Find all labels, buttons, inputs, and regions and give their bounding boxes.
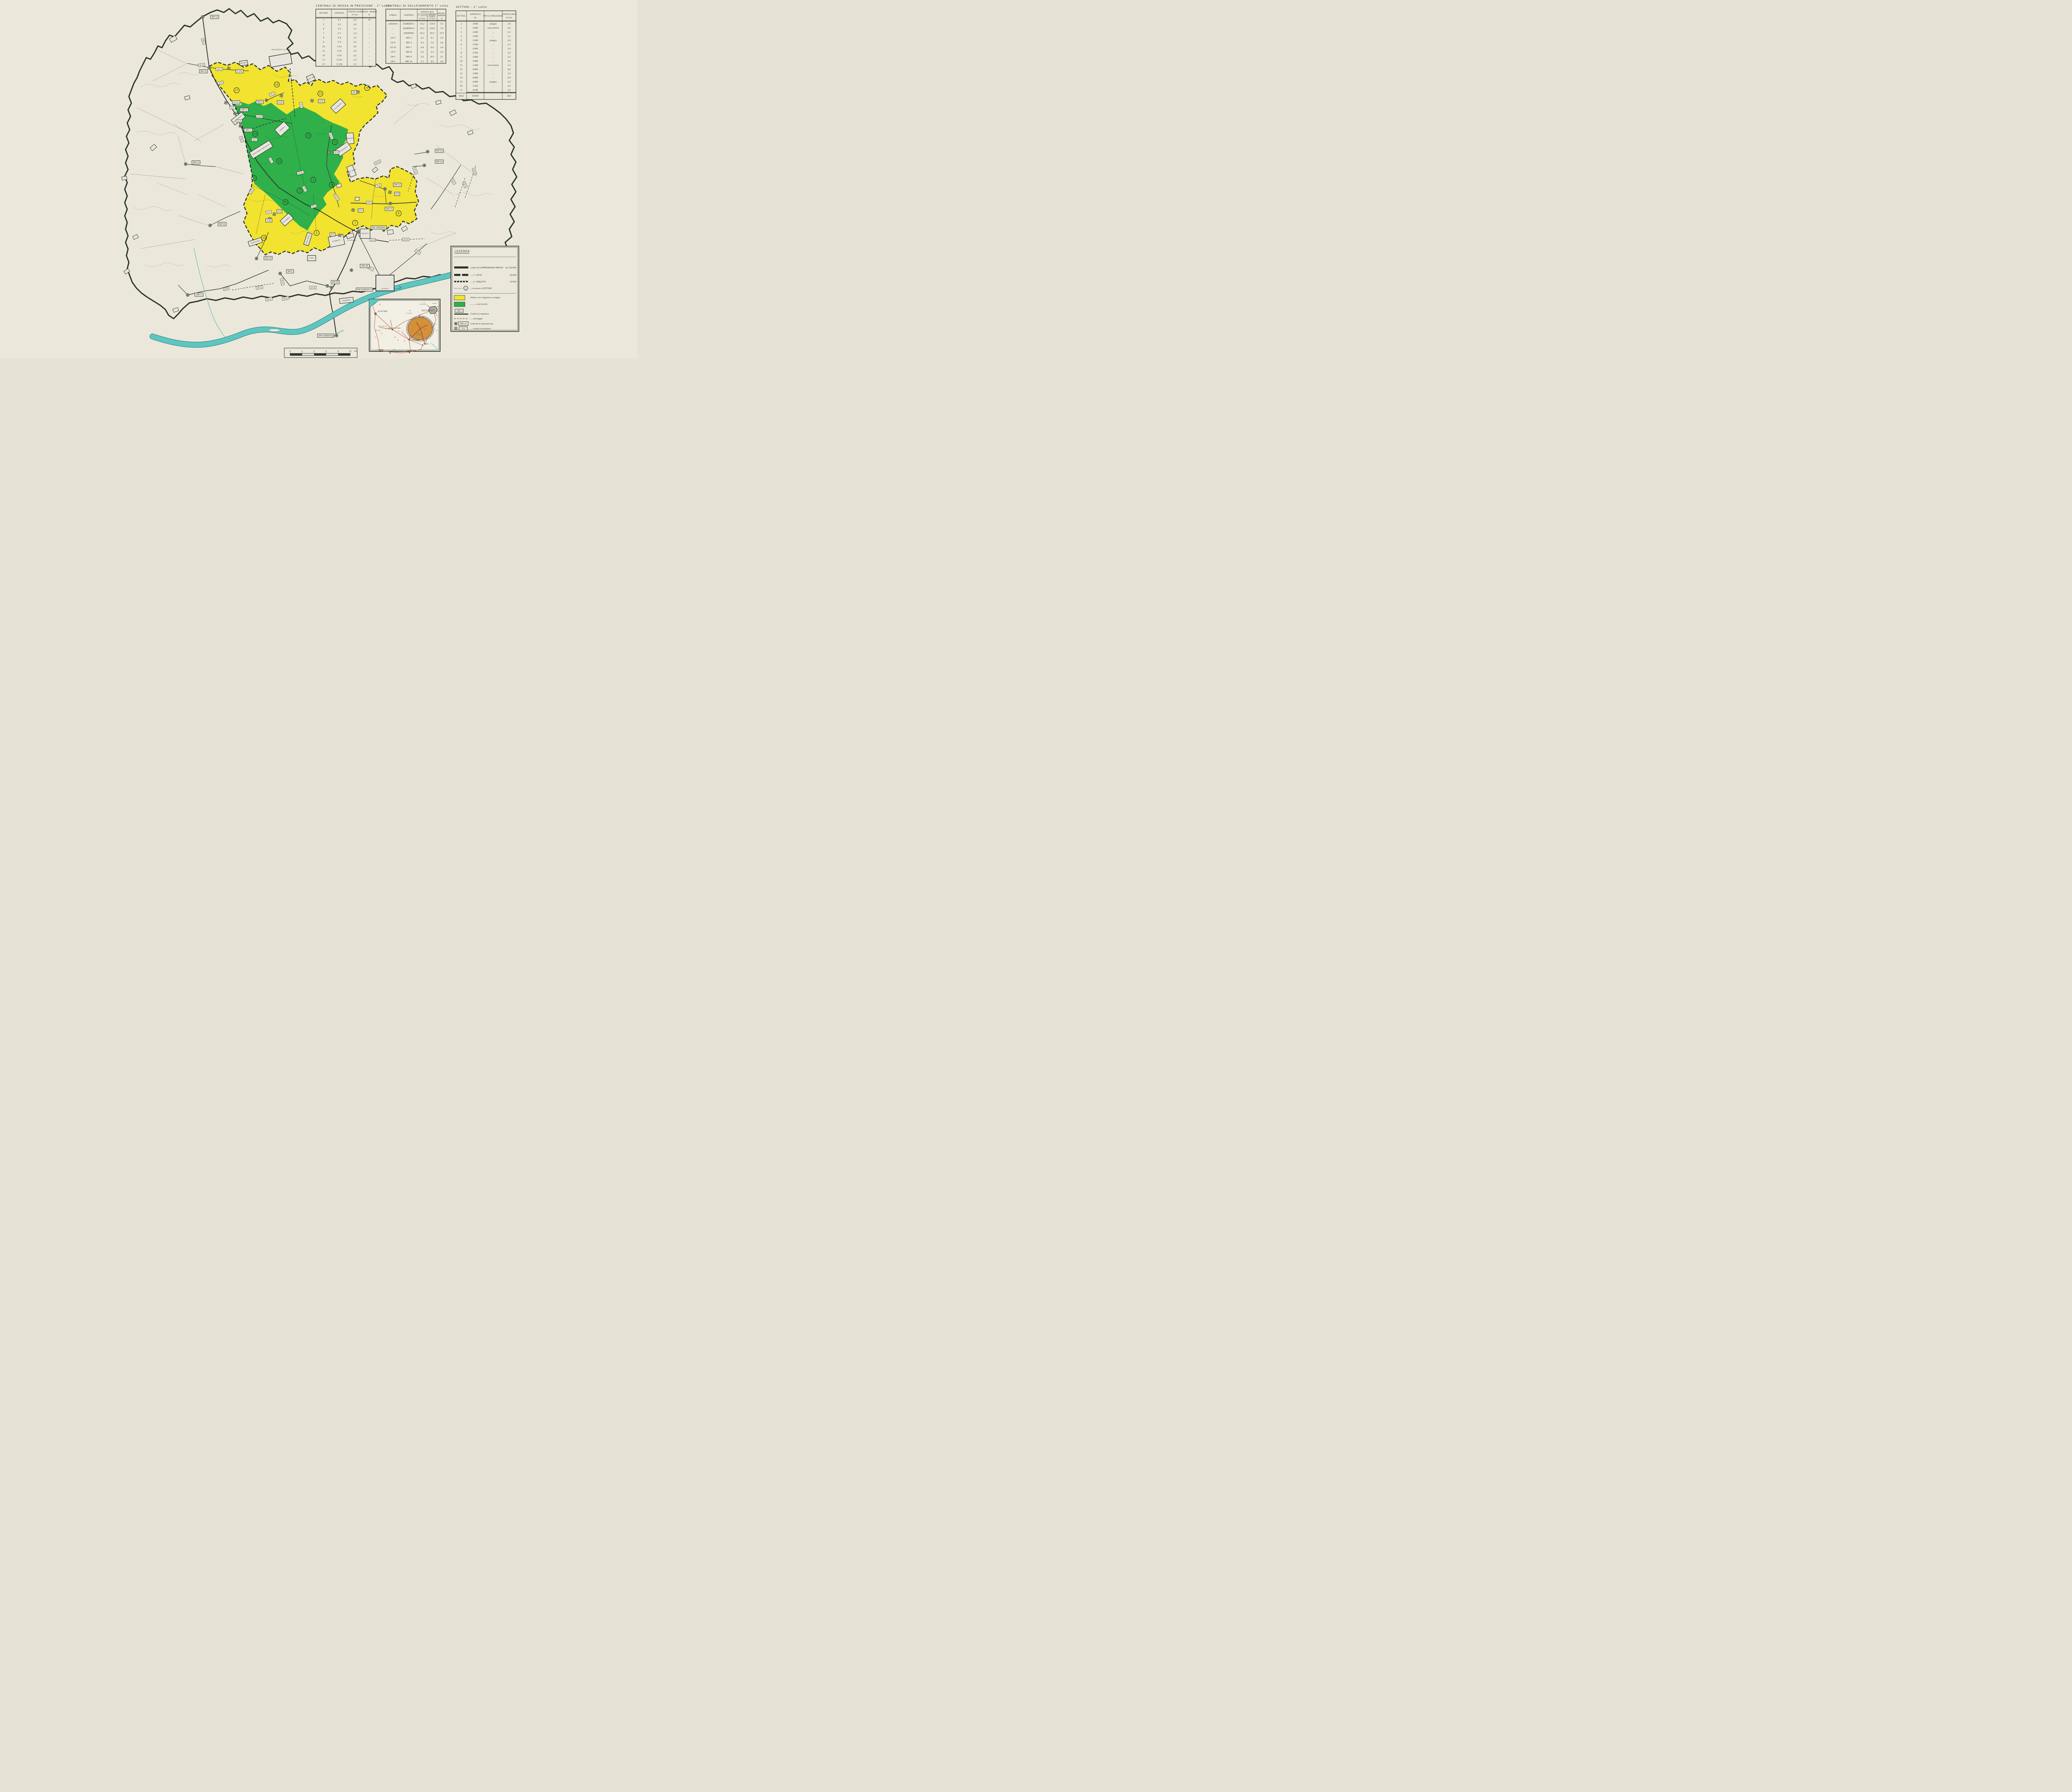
- cell-preval: „: [369, 28, 370, 30]
- cell-settore: 6: [323, 28, 324, 30]
- cell-intero: 8,9: [431, 60, 433, 63]
- cell-superficie: 2'200: [473, 31, 478, 34]
- settlement: [387, 230, 394, 235]
- inset-town-dot: [375, 313, 376, 314]
- cell-lotto: 3,3: [421, 56, 424, 58]
- sector-value: 1: [316, 232, 317, 235]
- total-superficie: 50'850: [472, 95, 479, 97]
- sector-value: 16: [275, 83, 278, 86]
- inset-road-number: 52: [397, 339, 399, 341]
- scale-bar-frame: [284, 348, 357, 358]
- cell-settore: 4: [461, 35, 462, 38]
- station-name: SRP 22: [193, 162, 199, 164]
- cell-intero: 116,0: [429, 27, 435, 30]
- cell-settore: 7: [323, 32, 324, 35]
- legend-srp-tag: SRP. 12: [460, 323, 467, 325]
- inset-town-dot: [379, 351, 380, 352]
- cell-preval: 3,0: [440, 60, 443, 63]
- irrigation-plan-sheet: VACENISATUL NOURAZMIRESTITOPARUTRESTIANA…: [0, 0, 637, 358]
- legend-line-item: „ e numero di SETTORE: [470, 288, 492, 290]
- cell-canale: CM 1: [391, 56, 396, 58]
- cell-canale: CD 5: [391, 37, 395, 39]
- cell-portata: 4,0: [508, 68, 511, 71]
- cell-settore: 10: [322, 46, 325, 48]
- table-frame: [456, 11, 516, 99]
- station-name: SRP. 18: [362, 265, 368, 267]
- pressure-station-name: S 1: [331, 234, 334, 236]
- cell-settore: 11: [460, 64, 462, 67]
- cell-intero: 7,0: [431, 41, 433, 44]
- canal-label: CP 5: [230, 106, 235, 109]
- col-header: MANOM.: [438, 15, 445, 17]
- cell-centrale: SLOBOZIA 2: [403, 27, 415, 30]
- cell-settore: 14: [460, 77, 462, 79]
- inset-road-number: 6: [385, 328, 386, 330]
- canal-name: CD 3: [371, 239, 375, 241]
- cell-settore: 7: [461, 48, 462, 50]
- station-name: SRP. 9: [242, 109, 247, 111]
- col-unit: Ha: [474, 17, 477, 19]
- sector-value: 4: [331, 184, 333, 186]
- table-frame: [386, 9, 446, 63]
- inset-town-name: Mihăileşti: [419, 316, 425, 318]
- cell-superficie: 4'000: [473, 81, 478, 83]
- col-header: CENTRALE: [334, 12, 344, 14]
- cell-settore: 1: [461, 23, 462, 25]
- cell-centrale: SRP. 5: [406, 41, 411, 44]
- station-name: SRP 2: [288, 271, 293, 273]
- inset-road-number: 45: [419, 314, 421, 316]
- cell-superficie: 2'000: [473, 27, 478, 29]
- cell-canale: CP 4: [391, 51, 395, 53]
- col-header: 1° LOTTO: [418, 15, 427, 17]
- river-island: [269, 329, 280, 332]
- cell-preval: „: [369, 59, 370, 61]
- cell-tipo: scorrimento: [487, 27, 499, 29]
- cell-settore: 15: [460, 81, 462, 83]
- cell-tipo: pioggia: [489, 81, 497, 83]
- cell-portata: 2,2: [508, 31, 511, 34]
- cell-tipo: „: [493, 60, 494, 63]
- col-header: SUPERFICIE: [470, 13, 481, 15]
- town-name: GHIZDARU: [347, 239, 357, 241]
- canal-name: CP 20: [311, 287, 315, 288]
- settlement: [121, 176, 127, 180]
- col-unit: m³/sec: [352, 14, 358, 16]
- pressure-station-name: S 7: [359, 210, 362, 212]
- inset-road-number: 73: [423, 302, 425, 304]
- cell-superficie: 1'200: [473, 35, 478, 38]
- cell-preval: 7,8: [440, 27, 443, 30]
- cell-intero: 10,7: [430, 56, 434, 58]
- cell-portata: 1,4: [508, 48, 511, 50]
- inset-town-name: ALEXANDRIA: [409, 339, 420, 341]
- sector-value: 12: [278, 160, 281, 163]
- sector-value: 8: [398, 212, 399, 215]
- cell-superficie: 3'600: [473, 39, 478, 42]
- legend-press-tag: S 5: [462, 328, 465, 330]
- cell-tipo: pioggia: [489, 23, 497, 25]
- cell-centrale: S 6: [338, 28, 341, 30]
- scale-bar-layer: 0246810Km: [284, 348, 357, 358]
- cell-portata: 2,2: [353, 41, 356, 44]
- cell-preval: 3,1: [440, 56, 443, 58]
- col-unit: m³/sec: [419, 17, 426, 19]
- canal-label: CD 3: [370, 238, 375, 241]
- legend-drain-item: „ „ drenaggio: [470, 318, 483, 320]
- cell-portata: 2,6: [508, 23, 511, 25]
- cell-superficie: 3'150: [473, 52, 478, 54]
- inset-road-number: 41: [436, 330, 438, 331]
- cell-intero: 81,0: [430, 32, 434, 35]
- cell-superficie: 3'300: [473, 44, 478, 46]
- pressure-station-name: S 17b: [237, 70, 242, 73]
- station-name: SRP SLOBOZIA 2: [357, 289, 372, 291]
- cell-tipo: „: [493, 85, 494, 87]
- cell-settore: 1: [323, 19, 324, 22]
- canal-label: CE 15: [402, 238, 409, 241]
- cell-centrale: S 16: [337, 54, 341, 57]
- cell-intero: 6,9: [431, 46, 433, 49]
- cell-settore: 6: [461, 44, 462, 46]
- cell-settore: 9: [461, 56, 462, 58]
- town-name: ONCESTI: [361, 233, 369, 235]
- settlement: [355, 197, 359, 201]
- cell-centrale: S 5: [338, 23, 341, 26]
- cell-centrale: S 17a: [336, 59, 342, 61]
- col-header: PORTATA MAX: [349, 11, 362, 13]
- cell-settore: 8: [323, 37, 324, 39]
- legend-sector-number: 2: [465, 287, 467, 290]
- canal-label: CD 11: [216, 68, 223, 70]
- col-unit: m: [441, 17, 443, 19]
- cell-superficie: 4'000: [473, 68, 478, 71]
- inset-road-number: 5B: [424, 329, 426, 331]
- table-pressione-title: CENTRALI DI MESSA IN PRESSIONE - 1° Lott…: [316, 4, 390, 7]
- canal-name: CE 3: [253, 139, 257, 140]
- inset-road-number: 48: [394, 336, 396, 338]
- station-name: SRP 10: [201, 70, 207, 73]
- cell-preval: „: [369, 41, 370, 44]
- cell-centrale: S 1: [338, 19, 341, 22]
- legend-area-item: Settore con irrigazione a pioggia: [470, 297, 500, 299]
- col-header: CANALE: [389, 14, 397, 16]
- canal-label: CM 3: [366, 201, 372, 204]
- station-name: SRP 20: [332, 281, 339, 283]
- inset-road-number: 54: [375, 336, 376, 338]
- pressure-station-name: S.16: [278, 102, 283, 104]
- inset-town-name: Drăgăneşti-Olt: [378, 325, 387, 327]
- cell-portata: 2,6: [353, 23, 356, 26]
- town-name: VIERU: [309, 257, 315, 259]
- legend-press-item: „ „ messa in pressione: [470, 328, 491, 330]
- cell-settore: 15: [322, 50, 325, 53]
- cell-preval: 3,3: [440, 51, 443, 53]
- col-header: SETTORE: [320, 12, 328, 14]
- total-portata: 38,0: [507, 95, 511, 97]
- canal-label: CD 10: [256, 115, 263, 118]
- cell-centrale: S 7: [338, 32, 341, 35]
- cell-portata: 1,3: [508, 64, 511, 67]
- inset-town-name: Vlasca: [417, 334, 421, 336]
- col-header: TIPO di IRRIGAZIONE: [483, 15, 503, 17]
- table-settori-title: SETTORI - 1° Lotto: [456, 5, 487, 9]
- inset-town-dot: [392, 329, 393, 331]
- sector-value: 9: [285, 201, 286, 204]
- cell-tipo: „: [493, 56, 494, 58]
- col-unit: m: [368, 14, 370, 16]
- legend-line-item: Limite del COMPRENSORIO IRRIGUO: [470, 267, 503, 269]
- canal-name: CP 5: [231, 107, 235, 109]
- pressure-station-name: S 17a: [234, 102, 239, 104]
- cell-portata: 2,2: [508, 56, 511, 58]
- inset-town-name: Corabia: [378, 348, 384, 351]
- cell-portata: 2,9: [508, 81, 511, 83]
- cell-tipo: „: [493, 36, 494, 38]
- sector-value: 6: [366, 87, 368, 89]
- inset-town-name: BUCUREŞTI: [422, 310, 435, 312]
- sector-value: 11: [252, 177, 256, 180]
- legend-area-swatch: [454, 295, 465, 300]
- col-header: CENTRALE: [404, 14, 414, 16]
- cell-superficie: 1'300: [473, 64, 478, 67]
- cell-portata: 2,8: [508, 60, 511, 63]
- legend-layer: LEGENDA2Limite del COMPRENSORIO IRRIGUOH…: [451, 246, 519, 331]
- pressure-station-name: S 6: [353, 92, 356, 94]
- cell-settore: 13: [460, 73, 462, 75]
- cell-superficie: 2'000: [473, 48, 478, 50]
- town-name: GIURGIU: [381, 288, 389, 290]
- scale-label: 0: [290, 350, 291, 353]
- cell-preval: 5,3: [440, 23, 443, 25]
- cell-settore: 3: [461, 31, 462, 34]
- scale-label: 4: [314, 350, 315, 353]
- inset-town-name: Vidra: [433, 323, 436, 325]
- cell-superficie: 3'900: [473, 60, 478, 63]
- cell-canale: „: [392, 33, 393, 35]
- cell-preval: „: [369, 46, 370, 48]
- cell-superficie: 3'600: [473, 23, 478, 25]
- cell-settore: 12: [460, 68, 462, 71]
- scale-label: 8: [338, 350, 339, 353]
- inset-town-name: Turnu Măgurele: [390, 351, 402, 353]
- cell-preval: 2,8: [440, 46, 443, 49]
- cell-portata: 3,0: [508, 89, 511, 92]
- cell-canale: „: [392, 28, 393, 30]
- cell-canale: CM 1: [391, 60, 396, 63]
- inset-town-name: Dăneasa: [375, 329, 380, 331]
- cell-preval: „: [369, 33, 370, 35]
- cell-portata: 2,2: [508, 85, 511, 87]
- pressure-station-name: S 5: [335, 152, 338, 154]
- cell-tipo: „: [493, 44, 494, 46]
- cell-portata: 4,4: [508, 77, 511, 79]
- inset-road-number: 61: [409, 310, 411, 312]
- station-name: SRP 15: [436, 161, 443, 163]
- cell-portata: 1,5: [353, 63, 356, 66]
- station-name: SRP 12: [212, 16, 218, 18]
- cell-settore: 10: [460, 60, 462, 63]
- cell-canale: CD 6: [391, 41, 395, 44]
- cell-tipo: „: [493, 77, 494, 79]
- cell-portata: 2,8: [353, 46, 356, 48]
- cell-superficie: 4'200: [473, 89, 478, 92]
- sector-value: 13: [307, 134, 310, 137]
- cell-canale: CD 10: [390, 46, 396, 49]
- scale-unit: Km: [354, 350, 357, 353]
- canal-label: CP 20: [310, 286, 317, 289]
- inset-town-name: Căldăru: [432, 302, 437, 304]
- inset-town-name: Zimnicea: [407, 349, 414, 351]
- cell-preval: 3,0: [440, 37, 443, 39]
- cell-settore: 16: [460, 85, 462, 87]
- legend-canal-item: Canale di irrigazione: [470, 313, 489, 315]
- legend-area-item: „ „ „ „ scorrimento: [470, 303, 487, 306]
- col-header: PORTATA MAX: [421, 11, 434, 13]
- legend-line-value: Ha 155'000: [505, 267, 516, 269]
- canal-name: CD 11: [217, 68, 221, 70]
- sector-value: 5: [334, 141, 336, 144]
- cell-intero: 116,0: [429, 23, 435, 25]
- station-name: SRP 8: [257, 101, 262, 103]
- cell-settore: 2: [461, 27, 462, 29]
- town: VIERU: [307, 256, 316, 261]
- cell-settore: 8: [461, 52, 462, 54]
- pressure-station-name: S 9: [278, 210, 281, 213]
- region-label: DRAGANESTI VLASCA: [271, 49, 290, 51]
- town: ONCESTI: [360, 229, 370, 239]
- cell-tipo: „: [493, 89, 494, 92]
- station-name: SRP. 7: [246, 129, 251, 131]
- canal-name: CE 8: [237, 120, 241, 122]
- cell-settore: 17: [460, 89, 462, 92]
- cell-intero: 2,2: [431, 51, 433, 53]
- legend-line-value: 50'000: [510, 274, 516, 277]
- cell-intero: 6,1: [431, 37, 433, 39]
- cell-lotto: 6,9: [421, 46, 424, 49]
- canal-label: CE 3: [252, 138, 257, 141]
- cell-preval: 77,5: [440, 32, 444, 35]
- cell-portata: 2,2: [353, 54, 356, 57]
- cell-superficie: 3'100: [473, 85, 478, 87]
- col-unit: m³/sec: [506, 17, 513, 19]
- legend-area-swatch: [454, 302, 465, 307]
- inset-map-layer: SLATINABUCUREŞTIRoşiorii de VedeALEXANDR…: [369, 299, 440, 353]
- station-name: SRP 14: [436, 150, 443, 152]
- cell-lotto: 2,2: [421, 51, 424, 53]
- cell-settore: 16: [322, 54, 325, 57]
- town: VACENI: [240, 60, 248, 66]
- station-name: SRP 34: [265, 257, 271, 259]
- cell-portata: 2,6: [353, 19, 356, 22]
- legend-srp-item: Centrale di sollevamento: [470, 323, 493, 325]
- canal-name: CM 3: [367, 202, 371, 203]
- cell-lotto: 1,5: [421, 60, 424, 63]
- cell-tipo: „: [493, 73, 494, 75]
- cell-lotto: 41,2: [420, 32, 424, 35]
- station-name: SRP. 3: [196, 294, 202, 296]
- cell-preval: „: [369, 51, 370, 53]
- cell-portata: 2,0: [508, 27, 511, 29]
- cell-tipo: pioggia: [489, 39, 497, 42]
- scale-label: 2: [302, 350, 303, 353]
- sector-value: 17: [235, 89, 238, 92]
- canal-label: CE 8: [236, 119, 242, 122]
- inset-town-name: Videle: [410, 319, 414, 320]
- cell-centrale: SLOBOZIA 1: [403, 23, 415, 25]
- cell-centrale: S 10: [337, 46, 341, 48]
- station-name: SRP 13: [395, 184, 401, 186]
- cell-centrale: S 17b: [336, 63, 342, 66]
- inset-road-number: 87: [416, 324, 418, 325]
- cell-portata: 2,2: [508, 52, 511, 54]
- cell-tipo: „: [493, 48, 494, 50]
- table-frame: [316, 9, 376, 66]
- cell-preval: „: [369, 37, 370, 39]
- inset-town-name: Giurgiu: [423, 343, 429, 345]
- cell-settore: 17: [322, 59, 325, 61]
- inset-road-number: 51A: [393, 349, 396, 351]
- cell-preval: „: [369, 64, 370, 66]
- sector-value: 2: [299, 189, 300, 192]
- station-name: SRP 35: [219, 223, 225, 225]
- scale-label: 6: [326, 350, 327, 353]
- sector-value: 10: [262, 237, 266, 239]
- inset-town-dot: [422, 345, 424, 346]
- irrigation-map-canvas: VACENISATUL NOURAZMIRESTITOPARUTRESTIANA…: [0, 0, 637, 358]
- cell-superficie: 3'000: [473, 56, 478, 58]
- inset-town-name: Roşiorii de Vede: [388, 327, 401, 329]
- legend-line-value: 14'000: [510, 281, 516, 283]
- cell-portata: 2,9: [353, 50, 356, 53]
- col-header: PREVAL. MANOM.: [361, 11, 378, 13]
- cell-centrale: SRP. 7: [406, 46, 411, 49]
- cell-centrale: S 8: [338, 37, 341, 39]
- cell-settore: 5: [323, 23, 324, 26]
- legend-line-item: „ „ 1° SUBLOTTO: [470, 281, 486, 283]
- pressure-station-name: S 8: [396, 193, 399, 195]
- cell-portata: 2,2: [353, 37, 356, 39]
- legend-title: LEGENDA: [455, 249, 470, 253]
- cell-preval: „: [369, 24, 370, 26]
- sector-value: 7: [354, 222, 356, 225]
- inset-town-name: Crevedia: [406, 312, 411, 314]
- cell-portata: 1,2: [508, 35, 511, 38]
- station-name: SRP 17: [386, 208, 392, 210]
- cell-centrale: SRP. 8: [406, 51, 411, 53]
- col-unit: m³/sec: [429, 17, 436, 19]
- station-name: SRP. GHIZDARU: [372, 227, 385, 229]
- cell-centrale: GHIZDARU: [404, 32, 414, 35]
- cell-settore: 17: [322, 63, 325, 66]
- cell-centrale: S 9: [338, 41, 341, 44]
- inset-road-number: 6: [421, 326, 421, 327]
- town: GIURGIU: [376, 275, 394, 291]
- cell-tipo: „: [493, 69, 494, 71]
- inset-road-number: 65: [379, 304, 381, 305]
- canal-name: CE 15: [404, 239, 408, 240]
- inset-road-number: 40: [404, 340, 405, 342]
- cell-portata: 2,3: [353, 28, 356, 30]
- cell-centrale: SRP. 4: [406, 37, 411, 39]
- sector-value: 14: [254, 133, 257, 135]
- cell-preval: „: [369, 55, 370, 57]
- cell-superficie: 4'400: [473, 77, 478, 79]
- legend-line-item: „ „ 1° LOTTO: [470, 274, 482, 277]
- inset-road-number: 54: [381, 333, 382, 334]
- inset-town-dot: [409, 352, 410, 353]
- cell-preval: 3,0: [440, 41, 443, 44]
